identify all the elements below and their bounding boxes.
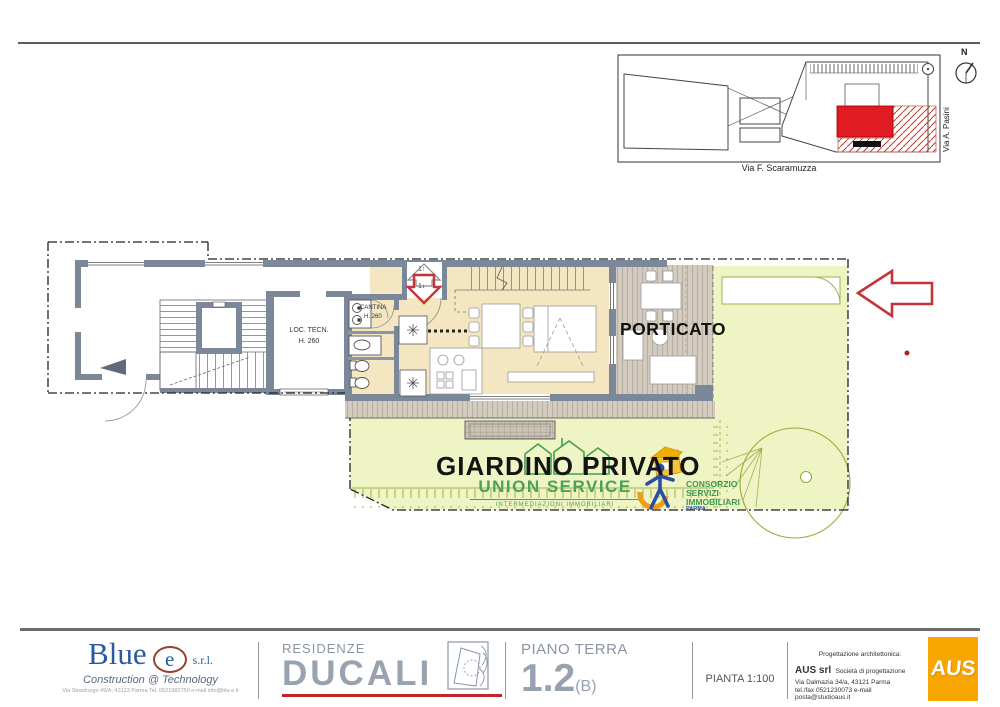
- architect-contact: tel./fax 0521230073 e-mail posta@studioa…: [795, 687, 925, 701]
- red-direction-arrow: [858, 271, 932, 356]
- architect-block: Progettazione architettonica: AUS srl So…: [795, 651, 925, 701]
- porticato-label: PORTICATO: [620, 319, 726, 340]
- down-arrow-icon: ↓: [422, 283, 426, 290]
- floor-number: 1.2: [521, 657, 575, 700]
- red-dot: [905, 351, 910, 356]
- architect-addr: Via Dalmazia 34/a, 43121 Parma: [795, 679, 925, 686]
- garden-walkway: [722, 277, 840, 304]
- entrance-door-swing: [105, 380, 146, 421]
- titleblock-divider-1: [258, 642, 259, 699]
- blue-e-circled-e: e: [153, 646, 187, 673]
- loc-tecn-label: LOC. TECN. H. 260: [268, 326, 350, 347]
- floor-section: PIANO TERRA 1.2(B): [521, 641, 628, 698]
- titleblock-divider-2: [505, 642, 506, 699]
- blueprint-page: Via F. Scaramuzza Via A. Pasini N LOC. T…: [0, 0, 1000, 707]
- titleblock-divider-4: [787, 642, 788, 699]
- blue-e-srl: s.r.l.: [193, 653, 213, 667]
- titleblock-divider-3: [692, 642, 693, 699]
- floor-label: PIANO TERRA: [521, 641, 628, 658]
- giardino-label: GIARDINO PRIVATO: [436, 451, 696, 482]
- residenze-ducali: RESIDENZE DUCALI: [282, 641, 432, 691]
- entrance-up-label: 1↑: [418, 266, 425, 273]
- aus-logo: AUS: [928, 637, 978, 701]
- site-street-right-label: Via A. Pasini: [942, 86, 951, 152]
- blue-e-address: Via Strasburgo 49/A, 43123 Parma Tel. 05…: [48, 688, 253, 694]
- architect-name: AUS srl: [795, 665, 831, 676]
- site-plan-inset: [618, 55, 940, 162]
- ducali-red-underline: [282, 694, 502, 697]
- ducali-name: DUCALI: [282, 656, 432, 691]
- dining-table: [469, 304, 533, 348]
- floor-variant: (B): [575, 678, 596, 695]
- compass-n-label: N: [961, 47, 968, 57]
- entrance-direction-triangle: [100, 359, 126, 375]
- architect-line1: Progettazione architettonica:: [795, 651, 925, 658]
- deck-strip: [345, 401, 715, 418]
- blue-e-logo: Blue e s.r.l. Construction @ Technology …: [48, 636, 253, 694]
- site-street-bottom-label: Via F. Scaramuzza: [618, 163, 940, 173]
- entrance-down-label: 1↓: [418, 283, 425, 290]
- highlighted-unit: [837, 106, 893, 137]
- compass-icon: [956, 63, 976, 83]
- scale-label: PIANTA 1:100: [695, 673, 785, 685]
- blue-e-word: Blue: [88, 636, 147, 671]
- plan-linework: [0, 0, 1000, 707]
- elevator: [196, 302, 242, 354]
- blue-e-tagline: Construction @ Technology: [48, 674, 253, 686]
- kitchen: [430, 348, 482, 394]
- ducali-sketch-icon: [447, 641, 493, 691]
- titleblock-rule: [20, 628, 980, 631]
- up-arrow-icon: ↑: [422, 266, 426, 273]
- cantina-label: CANTINA H. 260: [360, 304, 386, 322]
- architect-role: Società di progettazione: [836, 668, 906, 675]
